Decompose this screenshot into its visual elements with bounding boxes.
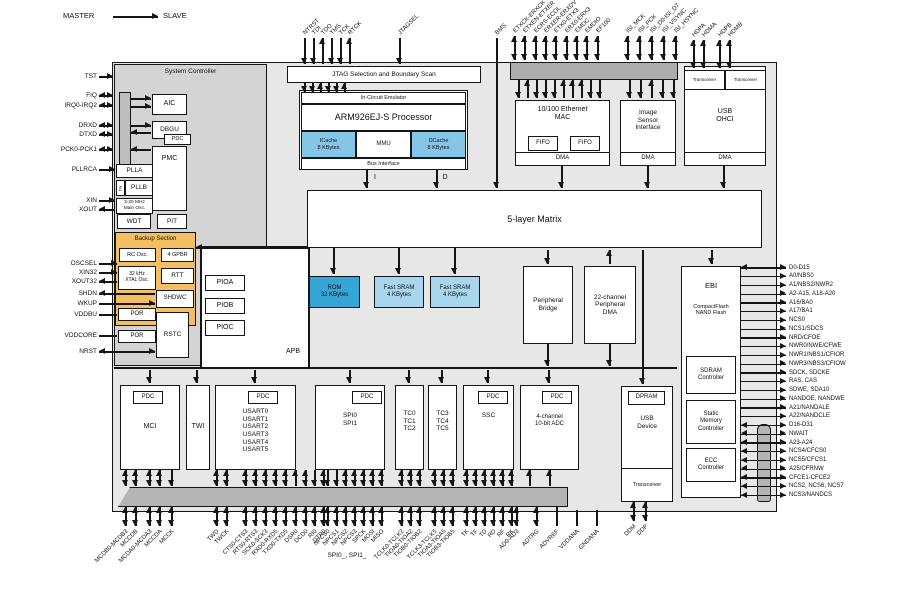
pin-label-bms: BMS [493,32,498,37]
pin-label-isi-pck: ISI_PCK [636,30,641,35]
arrowhead-down [513,520,519,526]
jtag-block-label: JTAG Selection and Boundary Scan [332,71,436,79]
arrowhead-up [716,40,722,46]
arrowhead-left [741,439,747,445]
ebi-subtitle-label: NAND Flash [696,310,727,316]
arrowhead-right [780,430,786,436]
arrowhead-left [131,129,137,135]
arrowhead-down [311,480,317,486]
bus-arrow [342,470,350,486]
usart-block-label: USART5 [243,446,269,454]
arm-core-block-label: ARM926EJ-S Processor [335,112,433,123]
arrowhead-up [407,507,413,513]
bus-arrow [168,470,176,486]
line [114,367,677,369]
pin-label-nandoe-nandwe: NANDOE, NANDWE [789,396,845,402]
bus-arrow [311,470,319,486]
plla-block: PLLA [116,164,153,178]
mac-fifo1-block: FIFO [528,136,558,151]
arrowhead-up [223,507,229,513]
arrowhead-down [122,480,128,486]
arrowhead-down [690,62,696,68]
arrowhead-up [573,36,579,42]
usb-ohci-block-label: OHCI [716,116,734,124]
bus-arrow [398,470,406,486]
pmc-block: PMC [152,146,187,211]
pin-ecrs-ecol [532,36,540,60]
arrowhead-down [416,480,422,486]
pin-label-adtrg: ADTRG [537,528,542,533]
wdt-block-label: WDT [127,218,142,226]
arrowhead-right [145,95,151,101]
arrowhead-up [533,507,539,513]
peripheral-bridge-block: PeripheralBridge [523,266,573,344]
pin-vddbu [99,311,117,319]
bus-arrow [542,80,550,98]
bus-arrow [395,248,403,274]
arrowhead-right [780,325,786,331]
arrowhead-up [302,470,308,476]
pin-label-miso: MISO [382,528,387,533]
pin-label-tiob0-tiob2: TIOB0-TIOB2 [420,528,425,533]
bus-arrow [242,470,250,486]
arrowhead-down [639,378,645,384]
arrowhead-up [272,507,278,513]
spi-block-label: SPI0 [343,412,357,420]
arrowhead-down [407,520,413,526]
arrowhead-down [369,520,375,526]
arrowhead-up [526,470,532,476]
pin-a2-a15-a18-a20 [741,290,786,298]
twi-block: TWI [186,385,210,470]
arrowhead-down [398,520,404,526]
arrowhead-down [596,92,602,98]
pin-pllrca [99,166,115,174]
pin-bms [493,38,501,188]
pin-hdpa [690,40,698,68]
pin-nrd-cfoe [741,334,786,342]
pit-block: PIT [157,214,187,229]
line [596,510,597,526]
usart-block-label: USART1 [243,416,269,424]
arrowhead-down [407,480,413,486]
bus-arrow [407,470,415,486]
pin-label-text: DDP [636,524,649,537]
arrowhead-down [242,520,248,526]
arrowhead-up [369,507,375,513]
pin-cfce1-cfce2 [741,474,786,482]
pin-rd [490,507,498,526]
arrowhead-up [311,507,317,513]
bus-arrow [440,470,448,486]
pin-pck0-pck1 [99,146,113,154]
bus-arrow [113,13,158,21]
pin-adtrg [533,507,541,526]
arrowhead-down [438,377,444,383]
pin-xout [99,206,115,214]
arrowhead-right [107,146,113,152]
usart-block-label: USART2 [243,423,269,431]
arrowhead-left [99,102,105,108]
d-bus-label-label: D [442,174,447,182]
arrowhead-up [213,470,219,476]
pin-label-vddana: VDDANA [577,528,582,533]
arrowhead-down [325,86,331,92]
bus-arrow [317,83,325,92]
pin-sdck-sdcke [741,369,786,377]
pin-rtck [346,38,354,64]
arrowhead-up [552,36,558,42]
arrowhead-down [337,58,343,64]
bus-arrow [114,364,677,372]
pin-a21-nandale [741,404,786,412]
arrowhead-up [481,470,487,476]
arrowhead-down [351,480,357,486]
arrowhead-down [324,480,330,486]
arrowhead-down [563,54,569,60]
arrowhead-right [107,92,113,98]
rc-osc-block-label: RC Osc. [127,252,148,258]
arrowhead-down [330,268,336,274]
arrowhead-down [481,520,487,526]
arrowhead-down [272,480,278,486]
line [99,351,155,352]
arrowhead-up [563,36,569,42]
arrowhead-down [642,515,648,521]
arrowhead-down [405,377,411,383]
pioc-block: PIOC [205,320,245,336]
arrowhead-up [578,80,584,86]
arrowhead-left [99,278,105,284]
i-bus-label: I [370,173,380,184]
pin-label-hdmb: HDMB [726,34,731,39]
arrowhead-up [292,507,298,513]
arrowhead-left [99,131,105,137]
pin-tk [463,507,471,526]
arrowhead-down [252,520,258,526]
pin-npcs1 [333,507,341,526]
pin-vddana [573,510,581,526]
bus-arrow [544,344,552,366]
arrowhead-down [716,62,722,68]
arrowhead-down [363,182,369,188]
arrowhead-up [369,470,375,476]
pin-label-ncs5-cfcs1: NCS5/CFCS1 [789,457,826,463]
pin-label-sdck-sdcke: SDCK, SDCKE [789,370,830,376]
ice-block: In-Circuit Emulator [301,92,466,104]
arrowhead-down [156,480,162,486]
pioa-block: PIOA [205,275,245,291]
arrowhead-down [440,520,446,526]
arrowhead-down [451,268,457,274]
pin-label-ecrs-ecol: ECRS-ECOL [532,30,537,35]
pin-label-erxer-erxdv: ERXER-ERXDV [542,30,547,35]
rtt-block: RTT [161,268,194,284]
arrowhead-down [395,268,401,274]
pin-label-isi-vsync: ISI_VSYNC [660,30,665,35]
bus-arrow [122,470,130,486]
legend-master-label: MASTER [63,11,94,20]
pin-ddp [642,502,650,521]
pllb-block: PLLB [125,180,153,196]
mmu-block-label: MMU [376,141,390,148]
arrowhead-right [111,260,117,266]
pmc-block-label: PMC [162,155,178,163]
arrowhead-up [272,470,278,476]
arrowhead-down [132,520,138,526]
pllb-block-label: PLLB [131,184,147,192]
arrowhead-down [508,480,514,486]
arrowhead-down [378,480,384,486]
line [556,507,557,526]
bus-arrow [546,470,554,486]
pin-label-mcck: MCCK [172,528,177,533]
arrowhead-down [545,377,551,383]
arrowhead-down [511,54,517,60]
pin-label-nrd-cfoe: NRD/CFOE [789,335,820,341]
arrowhead-up [700,40,706,46]
pin-label-text: BMS [494,23,507,36]
arrowhead-up [342,507,348,513]
arrowhead-down [360,480,366,486]
arrowhead-down [630,515,636,521]
usart-pdc-block-label: PDC [257,394,270,401]
arrowhead-down [533,520,539,526]
arrowhead-up [319,38,325,44]
arrowhead-right [780,334,786,340]
arrowhead-up [416,470,422,476]
arrowhead-up [490,470,496,476]
pllb-div-block: Div [116,180,125,196]
pin-nandoe-nandwe [741,395,786,403]
pin-tiob0-tiob2 [416,507,424,526]
arrowhead-right [107,131,113,137]
pin-mcdb0-mcdb3 [122,507,130,526]
arrowhead-down [132,480,138,486]
pin-label-ncs3-nandcs: NCS3/NANDCS [789,492,832,498]
bus-arrow [282,470,290,486]
pin-label-cfce1-cfce2: CFCE1-CFCE2 [789,475,830,481]
arrowhead-up [262,470,268,476]
arrowhead-down [272,520,278,526]
bus-arrow [378,470,386,486]
arrowhead-left [99,92,105,98]
por-backup-block-label: POR [130,311,143,318]
pin-label-xout: XOUT [35,206,97,213]
arrowhead-up [132,470,138,476]
arrowhead-up [302,507,308,513]
pin-ntrst [301,38,309,64]
arm-core-block: ARM926EJ-S Processor [301,104,466,131]
adc-pdc-block: PDC [542,391,572,404]
pin-label-text: ADTRG [521,529,540,548]
pin-etxen-etxer [521,36,529,60]
pin-tdi [310,38,318,64]
arrowhead-left [741,430,747,436]
pin-label-etxck-erxck: ETXCK-ERXCK [511,30,516,35]
pin-label-a25-cfrnw: A25/CFRNW [789,466,824,472]
arrowhead-down [672,54,678,60]
line [99,303,155,304]
arrowhead-down [552,54,558,60]
pin-ncs4-cfcs0 [741,448,786,456]
arrowhead-down [213,480,219,486]
arrowhead-down [626,92,632,98]
bus-arrow [131,95,151,103]
pin-label-tdo: TDO [319,32,324,37]
bus-arrow [499,470,507,486]
arrowhead-down [624,54,630,60]
bus-arrow [333,470,341,486]
pin-label-a1-nbs2-nwr2: A1/NBS2/NWR2 [789,282,833,288]
arrowhead-down [378,520,384,526]
aic-block-label: AIC [164,100,176,108]
arrowhead-up [546,470,552,476]
arrowhead-down [223,480,229,486]
arrowhead-down [122,520,128,526]
arrowhead-down [333,86,339,92]
usb-ohci-block-label: USB [718,108,732,116]
bus-arrow [606,344,614,366]
arrowhead-up [648,80,654,86]
ohci-transceiver1: Transceiver [684,70,725,90]
arrowhead-up [407,470,413,476]
shdwc-block-label: SHDWC [164,295,187,302]
arrowhead-right [780,343,786,349]
peripheral-bridge-block-label: Bridge [539,305,558,313]
por-backup-block: POR [118,308,156,321]
bus-arrow [544,250,552,264]
pin-label-a23-a24: A23-A24 [789,440,812,446]
pin-label-etxen-etxer: ETXEN-ETXER [521,30,526,35]
bus-arrow [156,470,164,486]
pin-tdo [319,38,327,64]
arrowhead-right [780,308,786,314]
tc012-block-label: TC0 [403,410,415,418]
mac-dma-strip-label: DMA [556,155,569,162]
arrowhead-down [440,480,446,486]
pin-npcs0 [324,507,332,526]
pin-npcs2 [342,507,350,526]
bus-arrow [292,470,300,486]
pin-npcs3 [351,507,359,526]
pin-label-hdpa: HDPA [690,34,695,39]
bus-arrow [262,470,270,486]
pin-hdpb [716,40,724,68]
arrowhead-up [333,507,339,513]
pin-d16-d31 [741,422,786,430]
pin-xin32 [99,269,117,277]
usb-dpram-block: DPRAM [628,391,665,405]
dbgu-pdc-block-label: PDC [172,136,184,142]
arrowhead-left [741,457,747,463]
arrowhead-left [741,465,747,471]
arrowhead-down [324,520,330,526]
bus-arrow [196,244,309,252]
arrowhead-up [583,36,589,42]
piob-block: PIOB [205,298,245,314]
pin-isi-pck [636,36,644,60]
arrowhead-up [360,507,366,513]
arrowhead-down [168,480,174,486]
arrowhead-down [396,58,402,64]
bus-arrow [433,170,441,188]
arrowhead-down [168,520,174,526]
mmu-block: MMU [356,131,411,158]
dcache-block-label: 8 KBytes [427,145,449,151]
pin-nwr3-nbs3-cfiow [741,360,786,368]
arrowhead-up [440,507,446,513]
arrowhead-down [309,86,315,92]
bus-arrow [515,80,523,98]
mac-fifo2-block-label: FIFO [578,140,592,147]
pin-label-text: JTAGSEL [397,13,420,36]
arrowhead-up [542,36,548,42]
arrowhead-right [152,13,158,19]
arrowhead-right [780,439,786,445]
arrowhead-up [726,40,732,46]
static-memory-controller-block-label: Static [703,411,718,418]
arrowhead-right [107,73,113,79]
arrowhead-down [302,480,308,486]
ice-block-label: In-Circuit Emulator [361,95,407,101]
arrowhead-up [499,470,505,476]
arrowhead-up [521,36,527,42]
arrowhead-left [99,146,105,152]
bus-arrow [524,80,532,98]
soc-block-diagram: MASTER SLAVE System ControllerAPBBackup … [0,0,900,597]
arrowhead-up [378,470,384,476]
pin-cts0-cts3 [242,507,250,526]
isi-dma-strip: DMA [620,152,676,166]
usb-transceiver-strip-label: Transceiver [633,482,662,488]
bus-arrow [551,80,559,98]
arrowhead-down [521,54,527,60]
arrowhead-up [630,502,636,508]
spi-block-label: SPI1 [343,420,357,428]
pin-label-a21-nandale: A21/NANDALE [789,405,830,411]
bus-arrow [223,470,231,486]
icache-block-label: 8 KBytes [317,145,339,151]
arrowhead-down [310,58,316,64]
arrowhead-up [660,36,666,42]
arrowhead-right [109,197,115,203]
pin-rf [499,507,507,526]
tc012-block: TC0TC1TC2 [395,385,424,470]
arrowhead-up [360,470,366,476]
pin-label-drxd: DRXD [35,122,97,129]
piob-block-label: PIOB [217,302,234,310]
bottom-pin-bar [118,487,568,507]
bus-arrow [252,470,260,486]
pin-label-xout32: XOUT32 [35,278,97,285]
arrowhead-up [524,80,530,86]
pin-label-nrst: NRST [35,348,97,355]
pin-ncs3-nandcs [741,492,786,500]
bus-arrow [369,470,377,486]
pin-rts0-rts3 [252,507,260,526]
pin-tms [328,38,336,64]
ethernet-mac-block-label: 10/100 Ethernet [538,106,588,114]
arrowhead-right [780,387,786,393]
pin-txd0-txd5 [282,507,290,526]
pin-label-pck0-pck1: PCK0-PCK1 [35,146,97,153]
bus-arrow [481,470,489,486]
pin-label-pllrca: PLLRCA [35,166,97,173]
pin-label-d0-d15: D0-D15 [789,265,810,271]
arrowhead-down [333,480,339,486]
pin-label-text: GNDANA [578,529,600,551]
